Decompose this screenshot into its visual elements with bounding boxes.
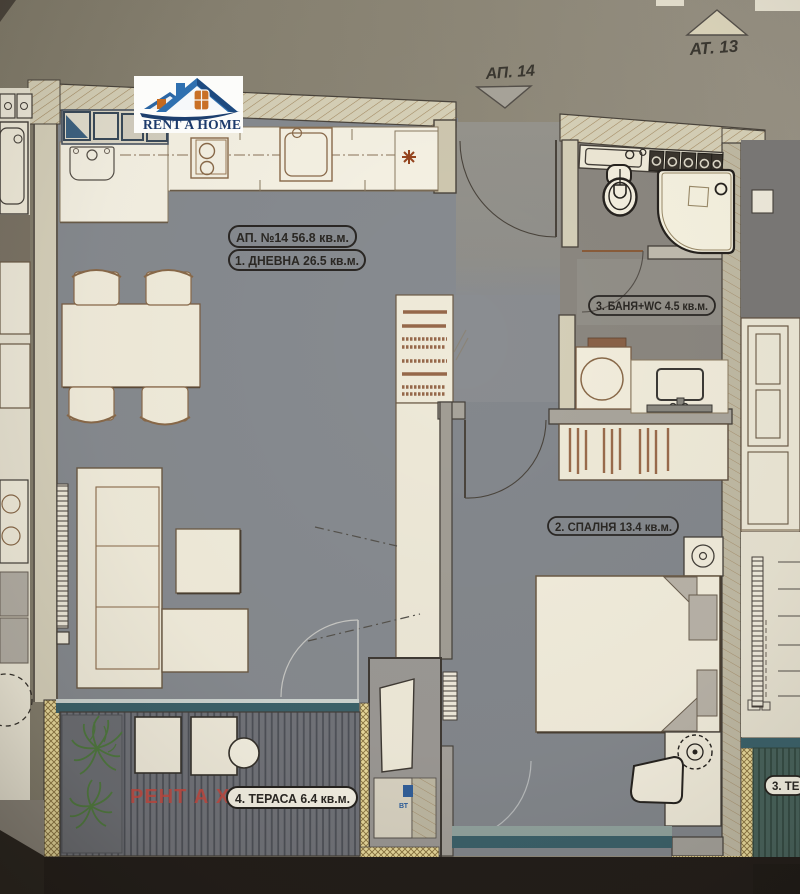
svg-text:RENT A HOME: RENT A HOME: [143, 117, 241, 132]
